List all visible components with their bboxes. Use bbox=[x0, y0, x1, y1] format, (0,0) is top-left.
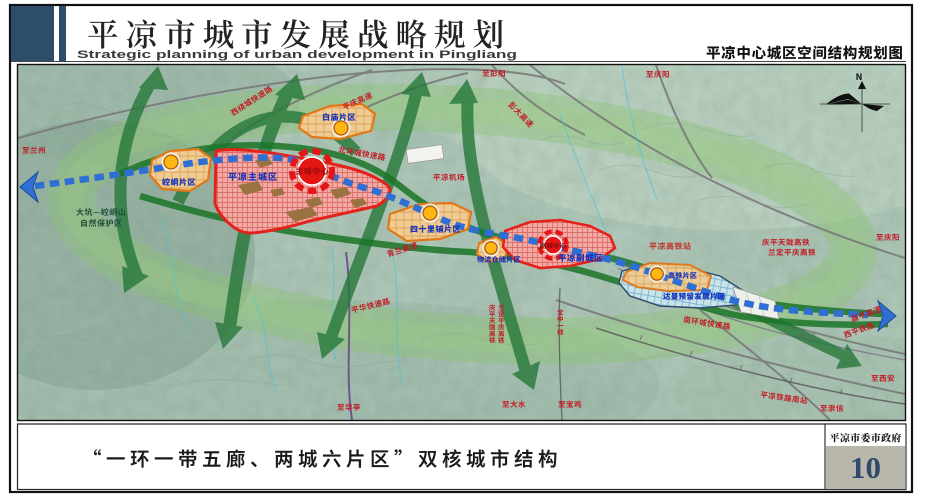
svg-text:G312: G312 bbox=[796, 331, 816, 341]
svg-text:Strategic planning of urban de: Strategic planning of urban development … bbox=[77, 49, 517, 61]
svg-text:10: 10 bbox=[850, 450, 881, 485]
